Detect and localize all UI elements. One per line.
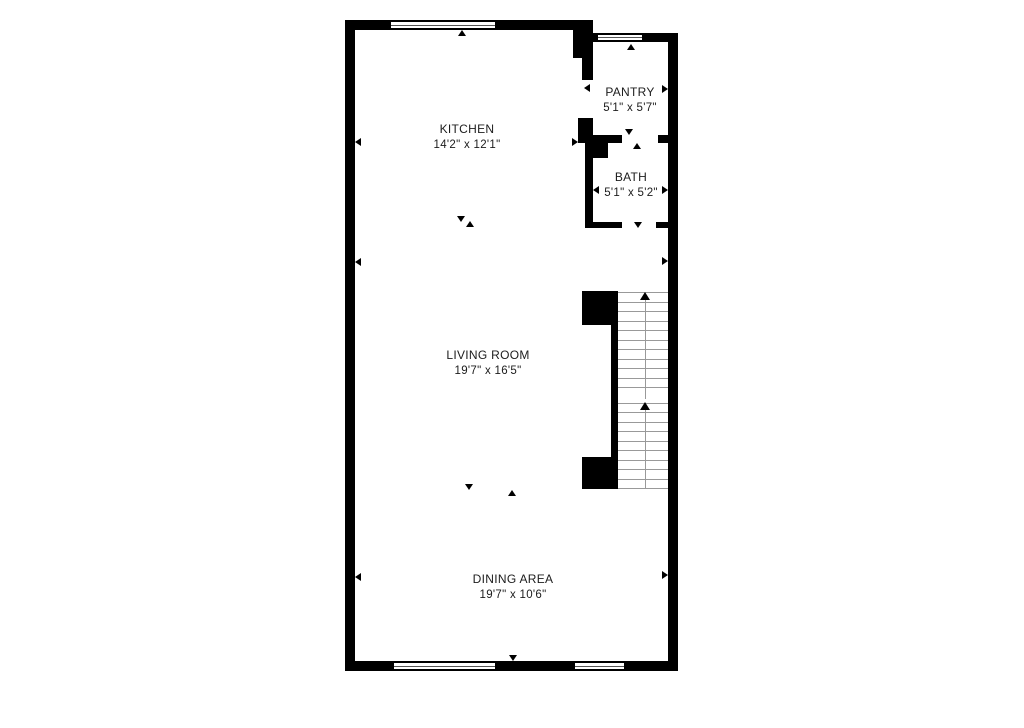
dim-marker-living-left [355, 258, 361, 266]
stair-up-arrow-stem-2 [645, 409, 646, 488]
dim-marker-bath-left [593, 186, 599, 194]
room-dimensions-dining-area: 19'7" x 10'6" [473, 587, 554, 603]
stair-tread [618, 431, 668, 432]
room-name-bath: BATH [604, 169, 658, 185]
stair-up-arrow-stem-1 [645, 299, 646, 399]
wall-pantry-bath-right [658, 135, 678, 143]
stair-tread [618, 488, 668, 489]
room-name-kitchen: KITCHEN [434, 121, 501, 137]
stair-tread [618, 311, 668, 312]
window-dining-bottom-left [391, 661, 498, 671]
wall-bath-left [585, 143, 593, 228]
room-label-kitchen: KITCHEN 14'2" x 12'1" [434, 121, 501, 153]
room-dimensions-living-room: 19'7" x 16'5" [446, 363, 529, 379]
wall-bath-bottom-left [585, 222, 622, 228]
wall-right-exterior [668, 33, 678, 671]
dim-marker-kitchen-left [355, 138, 361, 146]
stair-tread [618, 340, 668, 341]
stair-tread [618, 479, 668, 480]
stair-tread [618, 460, 668, 461]
window-pantry-top [595, 33, 645, 42]
window-kitchen-top [388, 20, 498, 30]
stair-tread [618, 349, 668, 350]
wall-pantry-bath-left [578, 135, 622, 143]
dim-marker-dining-top [508, 490, 516, 496]
stair-tread [618, 330, 668, 331]
dim-marker-pantry-bottom [625, 129, 633, 135]
wall-pantry-left-upper [582, 42, 593, 80]
dim-marker-kitchen-top [458, 30, 466, 36]
stair-bottom-block [582, 457, 618, 489]
stair-tread [618, 378, 668, 379]
stair-tread [618, 450, 668, 451]
room-name-dining-area: DINING AREA [473, 571, 554, 587]
room-label-dining-area: DINING AREA 19'7" x 10'6" [473, 571, 554, 603]
stair-tread [618, 422, 668, 423]
dim-marker-kitchen-bottom [457, 216, 465, 222]
floorplan-canvas: KITCHEN 14'2" x 12'1" PANTRY 5'1" x 5'7"… [0, 0, 1024, 728]
dim-marker-pantry-left [584, 84, 590, 92]
wall-bath-bottom-right [656, 222, 678, 228]
window-dining-bottom-right [572, 661, 627, 671]
dim-marker-pantry-right [662, 85, 668, 93]
dim-marker-dining-bottom [509, 655, 517, 661]
stair-up-arrow-icon-2 [640, 402, 650, 410]
stair-tread [618, 359, 668, 360]
stair-tread [618, 387, 668, 388]
stair-tread [618, 321, 668, 322]
stair-tread [618, 302, 668, 303]
room-name-living-room: LIVING ROOM [446, 347, 529, 363]
room-name-pantry: PANTRY [603, 84, 657, 100]
dim-marker-bath-bottom [634, 222, 642, 228]
stair-tread [618, 441, 668, 442]
room-dimensions-pantry: 5'1" x 5'7" [603, 100, 657, 116]
dim-marker-dining-left [355, 573, 361, 581]
dim-marker-bath-top [633, 143, 641, 149]
room-label-bath: BATH 5'1" x 5'2" [604, 169, 658, 201]
dim-marker-living-right [662, 257, 668, 265]
stair-tread [618, 412, 668, 413]
dim-marker-kitchen-right [572, 138, 578, 146]
dim-marker-pantry-top [627, 44, 635, 50]
dim-marker-dining-right [662, 571, 668, 579]
room-label-living-room: LIVING ROOM 19'7" x 16'5" [446, 347, 529, 379]
stair-tread [618, 368, 668, 369]
room-dimensions-kitchen: 14'2" x 12'1" [434, 137, 501, 153]
dim-marker-living-bottom [465, 484, 473, 490]
stair-tread [618, 469, 668, 470]
wall-left-exterior [345, 20, 355, 671]
dim-marker-living-top [466, 221, 474, 227]
stair-up-arrow-icon-1 [640, 292, 650, 300]
room-dimensions-bath: 5'1" x 5'2" [604, 185, 658, 201]
room-label-pantry: PANTRY 5'1" x 5'7" [603, 84, 657, 116]
dim-marker-bath-right [662, 186, 668, 194]
